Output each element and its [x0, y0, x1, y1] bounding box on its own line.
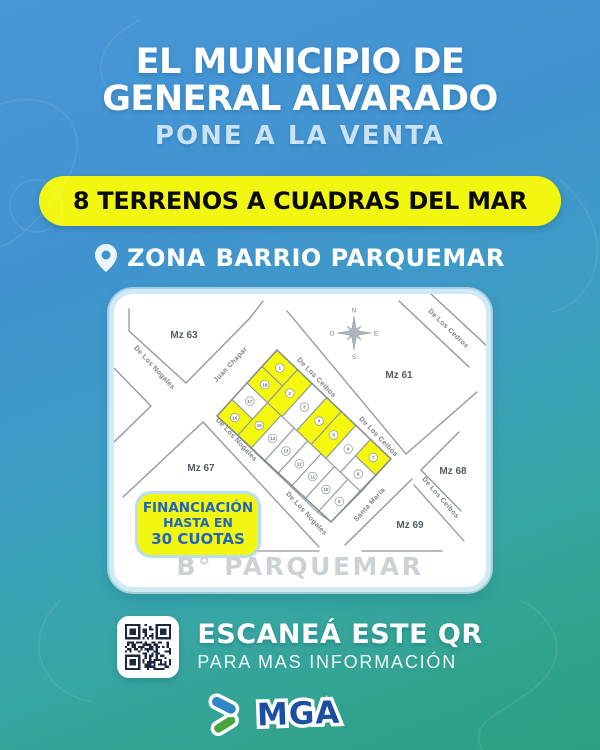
page-title: EL MUNICIPIO DE GENERAL ALVARADO — [0, 44, 600, 118]
badge-line-2: HASTA EN — [142, 516, 254, 530]
location-row: ZONA BARRIO PARQUEMAR — [0, 244, 600, 272]
street-label-chapar: Juan Chapar — [213, 346, 249, 384]
svg-text:17: 17 — [247, 399, 253, 404]
compass-rose: N S E O — [329, 308, 378, 362]
location-pin-icon — [95, 244, 117, 272]
title-line-1: EL MUNICIPIO DE — [0, 44, 600, 81]
map-card: 1 2 3 4 5 6 7 — [109, 289, 491, 592]
mga-logo: MGA — [0, 690, 600, 736]
manzana-label-68: Mz 68 — [439, 466, 467, 477]
neighborhood-label: B° PARQUEMAR — [114, 552, 486, 581]
manzana-label-61: Mz 61 — [385, 370, 413, 381]
logo-text: MGA — [256, 695, 341, 734]
svg-text:10: 10 — [323, 487, 329, 492]
svg-text:12: 12 — [297, 462, 303, 467]
logo-mark-icon — [208, 692, 241, 737]
manzana-label-69: Mz 69 — [396, 520, 424, 531]
svg-text:16: 16 — [232, 415, 238, 420]
flyer-background: EL MUNICIPIO DE GENERAL ALVARADO PONE A … — [0, 0, 600, 750]
financing-badge: FINANCIACIÓN HASTA EN 30 CUOTAS — [138, 494, 258, 555]
qr-code-pattern — [125, 624, 171, 670]
street-label-cedros: De Los Cedros — [426, 308, 469, 350]
subtitle: PONE A LA VENTA — [0, 121, 600, 151]
badge-line-1: FINANCIACIÓN — [142, 501, 254, 516]
compass-south: S — [352, 354, 357, 361]
qr-code — [117, 616, 179, 678]
qr-subheading: PARA MAS INFORMACIÓN — [197, 650, 482, 674]
svg-text:11: 11 — [310, 474, 315, 479]
svg-text:13: 13 — [283, 449, 289, 454]
qr-heading: ESCANEÁ ESTE QR — [197, 620, 482, 650]
location-name: BARRIO PARQUEMAR — [216, 244, 505, 272]
manzana-label-63: Mz 63 — [170, 330, 198, 341]
manzana-label-67: Mz 67 — [187, 463, 215, 474]
location-zone-label: ZONA — [127, 244, 205, 272]
qr-section: ESCANEÁ ESTE QR PARA MAS INFORMACIÓN — [0, 616, 600, 678]
compass-west: O — [329, 330, 334, 337]
svg-text:18: 18 — [262, 382, 268, 387]
compass-north: N — [352, 308, 357, 315]
title-line-2: GENERAL ALVARADO — [0, 81, 600, 118]
svg-text:15: 15 — [257, 423, 263, 428]
compass-east: E — [374, 330, 379, 337]
qr-text: ESCANEÁ ESTE QR PARA MAS INFORMACIÓN — [197, 620, 482, 674]
banner-pill: 8 TERRENOS A CUADRAS DEL MAR — [39, 176, 561, 226]
svg-text:14: 14 — [270, 436, 276, 441]
badge-line-3: 30 CUOTAS — [142, 531, 254, 548]
